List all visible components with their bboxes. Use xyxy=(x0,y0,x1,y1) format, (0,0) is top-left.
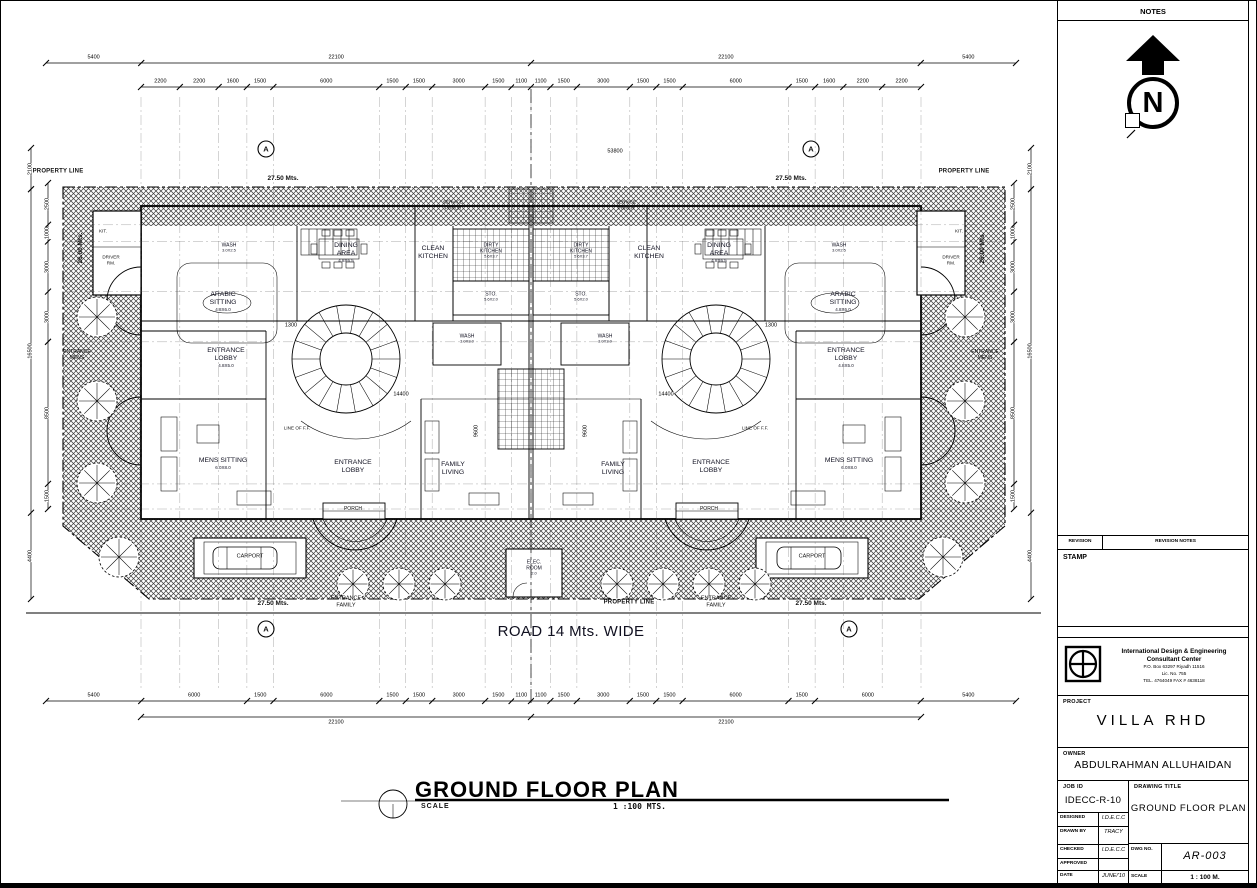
approved-value xyxy=(1099,859,1128,870)
stamp-area: STAMP xyxy=(1058,550,1248,627)
owner-label: OWNER xyxy=(1058,748,1248,757)
title-block-spacer xyxy=(1058,627,1248,638)
dwg-no-row: DWG NO. AR-003 xyxy=(1129,843,1248,870)
drawing-title-cell: DRAWING TITLE GROUND FLOOR PLAN xyxy=(1129,781,1248,843)
job-id-value: IDECC-R-10 xyxy=(1058,795,1128,806)
job-id-cell: JOB ID IDECC-R-10 xyxy=(1058,781,1128,812)
project-section: PROJECT VILLA RHD xyxy=(1058,696,1248,748)
approved-label: APPROVED xyxy=(1058,859,1099,870)
owner-name: ABDULRAHMAN ALLUHAIDAN xyxy=(1058,759,1248,771)
dwg-no-value: AR-003 xyxy=(1162,844,1248,870)
checked-row: CHECKED I.D.E.C.C xyxy=(1058,844,1128,858)
car-icon xyxy=(213,547,277,569)
revision-row: REVISION REVISION NOTES xyxy=(1058,536,1248,550)
revision-notes-label: REVISION NOTES xyxy=(1103,536,1248,549)
scale-label: SCALE xyxy=(1129,871,1162,885)
title-block: NOTES N REVISION REVISION NOTES STAMP xyxy=(1057,1,1249,885)
drawn-by-value: TRACY xyxy=(1099,827,1128,844)
revision-label: REVISION xyxy=(1058,536,1103,549)
dirty-kitchen-tiles xyxy=(533,229,609,281)
checked-label: CHECKED xyxy=(1058,845,1099,858)
drawing-title-label: DRAWING TITLE xyxy=(1129,781,1248,790)
drawing-title-value: GROUND FLOOR PLAN xyxy=(1129,803,1248,814)
company-phone: TEL. 4764049 FAX # 4638118 xyxy=(1104,678,1244,685)
stamp-label: STAMP xyxy=(1063,554,1087,561)
company-license: Lic. No. 755 xyxy=(1104,671,1244,678)
floor-plan-area: GROUND FLOOR PLAN SCALE 1 :100 MTS. 5400… xyxy=(1,1,1057,885)
project-name: VILLA RHD xyxy=(1058,712,1248,729)
checked-value: I.D.E.C.C xyxy=(1099,845,1128,858)
designed-value: I.D.E.C.C xyxy=(1099,813,1128,826)
notes-area: N xyxy=(1058,21,1248,536)
date-value: JUNE/'10 xyxy=(1099,871,1128,885)
job-id-label: JOB ID xyxy=(1058,781,1128,790)
north-arrow-icon: N xyxy=(1126,35,1180,129)
drawn-by-label: DRAWN BY xyxy=(1058,827,1099,844)
title-block-table: JOB ID IDECC-R-10 DESIGNED I.D.E.C.C DRA… xyxy=(1058,781,1248,885)
north-emblem: N xyxy=(1127,77,1179,129)
scale-value: 1 : 100 M. xyxy=(1162,871,1248,885)
company-name-line2: Consultant Center xyxy=(1104,656,1244,664)
dirty-kitchen-tiles xyxy=(453,229,529,281)
date-row: DATE JUNE/'10 xyxy=(1058,870,1128,885)
pencil-icon xyxy=(1125,113,1140,128)
company-block: International Design & Engineering Consu… xyxy=(1058,638,1248,696)
company-name-line1: International Design & Engineering xyxy=(1104,648,1244,656)
approved-row: APPROVED xyxy=(1058,858,1128,870)
elec-room-box xyxy=(506,549,562,597)
company-address: P.O. Box 63297 Riyadh 11516 xyxy=(1104,664,1244,671)
floor-plan-drawing xyxy=(1,1,1057,885)
designed-label: DESIGNED xyxy=(1058,813,1099,826)
dwg-no-label: DWG NO. xyxy=(1129,844,1162,870)
company-logo xyxy=(1064,645,1104,688)
north-letter: N xyxy=(1143,87,1164,120)
drawn-by-row: DRAWN BY TRACY xyxy=(1058,826,1128,844)
owner-section: OWNER ABDULRAHMAN ALLUHAIDAN xyxy=(1058,748,1248,781)
north-arrow-shape xyxy=(1126,35,1180,75)
drawing-sheet: GROUND FLOOR PLAN SCALE 1 :100 MTS. 5400… xyxy=(0,0,1257,888)
notes-header: NOTES xyxy=(1058,1,1248,21)
date-label: DATE xyxy=(1058,871,1099,885)
project-label: PROJECT xyxy=(1058,696,1248,705)
car-icon xyxy=(777,547,841,569)
designed-row: DESIGNED I.D.E.C.C xyxy=(1058,812,1128,826)
scale-row: SCALE 1 : 100 M. xyxy=(1129,870,1248,885)
